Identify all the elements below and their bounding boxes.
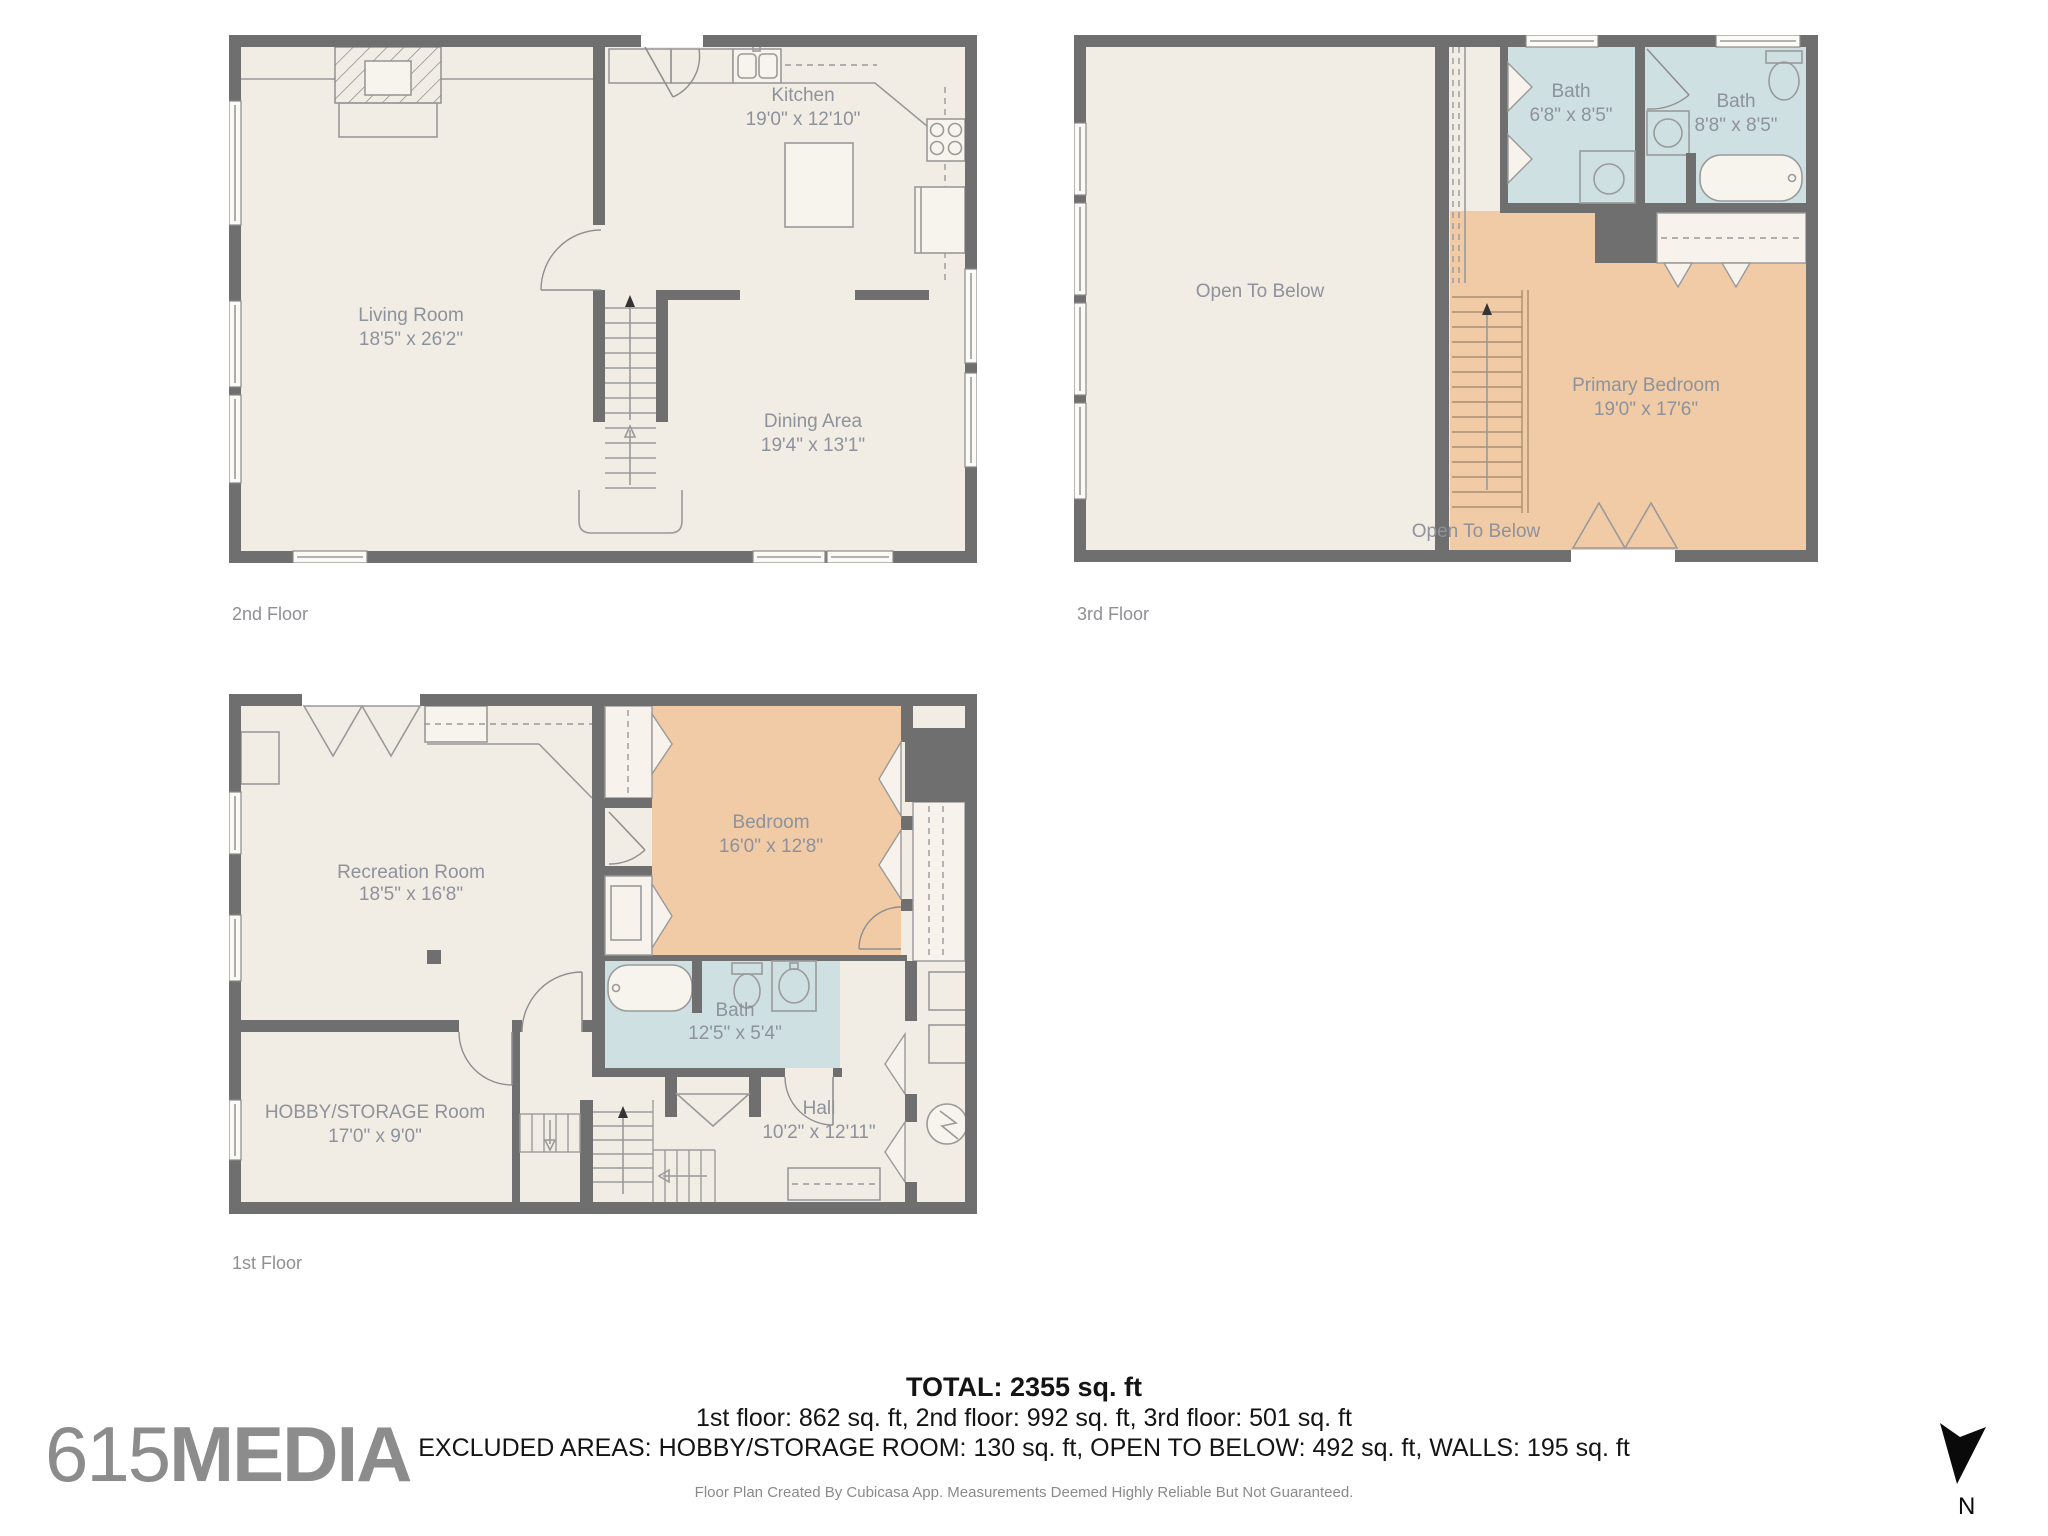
open-to-below-small-label: Open To Below <box>1412 521 1541 542</box>
kitchen-label: Kitchen <box>771 85 834 106</box>
recreation-room-label: Recreation Room <box>337 862 485 883</box>
support-post <box>427 950 441 964</box>
caption-3rd-floor: 3rd Floor <box>1077 604 1149 625</box>
dining-area-dims: 19'4" x 13'1" <box>761 435 865 456</box>
bath-small-label: Bath <box>1551 81 1590 102</box>
primary-bedroom-dims: 19'0" x 17'6" <box>1594 399 1698 420</box>
open-to-below-label: Open To Below <box>1196 281 1325 302</box>
hobby-storage-dims: 17'0" x 9'0" <box>328 1126 422 1147</box>
hobby-storage-label: HOBBY/STORAGE Room <box>265 1102 485 1123</box>
stove-icon <box>927 119 965 161</box>
floorplan-sheet: Kitchen 19'0" x 12'10" Living Room 18'5"… <box>0 0 2048 1536</box>
bedroom-dims: 16'0" x 12'8" <box>719 836 823 857</box>
living-room-label: Living Room <box>358 305 464 326</box>
bath-small-dims: 6'8" x 8'5" <box>1529 105 1612 126</box>
bath-large-dims: 8'8" x 8'5" <box>1694 115 1777 136</box>
kitchen-island <box>785 143 853 227</box>
total-area-text: TOTAL: 2355 sq. ft <box>0 1372 2048 1403</box>
floor-plan-2nd: Kitchen 19'0" x 12'10" Living Room 18'5"… <box>229 35 977 563</box>
north-arrow-icon: N <box>1936 1418 1996 1522</box>
615-media-logo: 615MEDIA <box>45 1414 410 1494</box>
north-label: N <box>1958 1493 1975 1520</box>
primary-bedroom-label: Primary Bedroom <box>1572 375 1720 396</box>
living-room-dims: 18'5" x 26'2" <box>359 329 463 350</box>
windows-1st <box>229 792 241 1160</box>
floor-plan-3rd: Bath 6'8" x 8'5" Bath 8'8" x 8'5" Open T… <box>1074 35 1818 562</box>
bedroom-label: Bedroom <box>732 812 809 833</box>
wall-block <box>1595 213 1657 263</box>
hall-dims: 10'2" x 12'11" <box>762 1122 875 1143</box>
door-opening <box>1571 550 1675 562</box>
caption-1st-floor: 1st Floor <box>232 1253 302 1274</box>
electrical-panel-icon <box>927 1104 967 1144</box>
kitchen-sink <box>733 45 781 83</box>
hall-label: Hall <box>803 1098 836 1119</box>
rec-cabinet <box>425 706 487 742</box>
disclaimer-text: Floor Plan Created By Cubicasa App. Meas… <box>0 1484 2048 1501</box>
bath-label: Bath <box>715 1000 754 1021</box>
recreation-room-dims: 18'5" x 16'8" <box>359 884 463 905</box>
refrigerator-icon <box>915 187 965 253</box>
caption-2nd-floor: 2nd Floor <box>232 604 308 625</box>
dining-area-label: Dining Area <box>764 411 863 432</box>
floor-plan-1st: Recreation Room 18'5" x 16'8" Bedroom 16… <box>229 694 977 1214</box>
kitchen-dims: 19'0" x 12'10" <box>746 109 861 130</box>
bath-large-label: Bath <box>1716 91 1755 112</box>
bath-dims: 12'5" x 5'4" <box>688 1023 782 1044</box>
